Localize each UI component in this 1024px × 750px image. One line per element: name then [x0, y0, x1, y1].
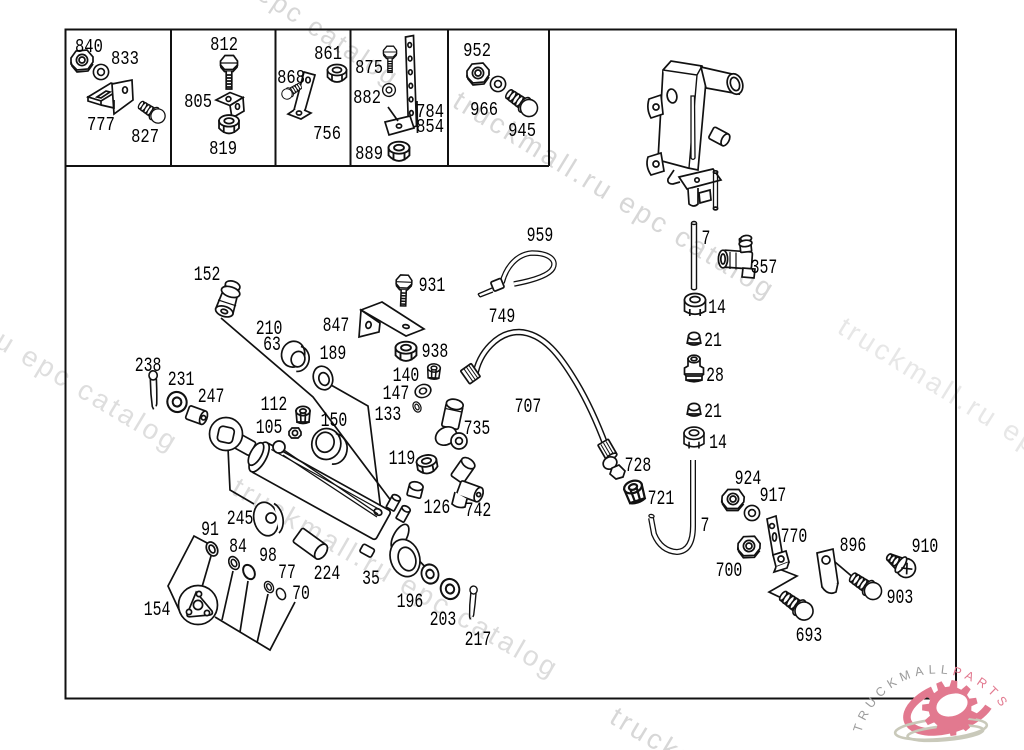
svg-text:35: 35: [362, 568, 380, 591]
svg-text:21: 21: [704, 330, 722, 353]
svg-text:742: 742: [465, 500, 492, 523]
svg-text:224: 224: [314, 563, 341, 586]
svg-text:28: 28: [706, 365, 724, 388]
svg-text:931: 931: [419, 275, 446, 298]
svg-text:735: 735: [464, 418, 491, 441]
svg-text:245: 245: [227, 508, 254, 531]
svg-text:133: 133: [375, 404, 402, 427]
svg-text:98: 98: [259, 545, 277, 568]
svg-text:91: 91: [201, 519, 219, 542]
svg-text:700: 700: [716, 560, 743, 583]
svg-text:203: 203: [430, 609, 457, 632]
svg-text:903: 903: [887, 587, 914, 610]
svg-text:952: 952: [463, 40, 491, 62]
svg-text:21: 21: [704, 401, 722, 424]
svg-text:827: 827: [131, 126, 159, 148]
svg-text:917: 917: [760, 485, 787, 508]
svg-text:959: 959: [527, 225, 554, 248]
svg-text:924: 924: [735, 468, 762, 491]
svg-text:861: 861: [314, 43, 342, 65]
svg-text:910: 910: [912, 536, 939, 559]
svg-text:882: 882: [353, 87, 381, 109]
svg-text:112: 112: [261, 394, 288, 417]
svg-text:105: 105: [256, 417, 283, 440]
svg-text:812: 812: [210, 34, 238, 56]
svg-text:721: 721: [648, 488, 675, 511]
svg-text:14: 14: [708, 297, 726, 320]
svg-text:231: 231: [168, 369, 195, 392]
svg-text:152: 152: [194, 264, 221, 287]
svg-text:84: 84: [229, 536, 247, 559]
svg-text:247: 247: [198, 386, 225, 409]
svg-text:63: 63: [263, 334, 281, 357]
svg-text:966: 966: [470, 99, 498, 121]
svg-text:875: 875: [355, 57, 383, 79]
svg-text:196: 196: [397, 591, 424, 614]
svg-text:749: 749: [489, 306, 516, 329]
svg-text:147: 147: [383, 383, 410, 406]
svg-text:938: 938: [422, 341, 449, 364]
svg-text:840: 840: [75, 36, 103, 58]
svg-text:238: 238: [135, 355, 162, 378]
svg-text:7: 7: [701, 515, 710, 538]
svg-text:7: 7: [702, 228, 711, 251]
svg-text:805: 805: [184, 91, 212, 113]
svg-text:756: 756: [313, 123, 341, 145]
svg-text:868: 868: [277, 67, 305, 89]
svg-text:357: 357: [751, 257, 778, 280]
svg-text:854: 854: [416, 116, 444, 138]
svg-text:896: 896: [840, 535, 867, 558]
svg-text:119: 119: [389, 448, 416, 471]
svg-text:945: 945: [508, 120, 536, 142]
svg-text:150: 150: [321, 410, 348, 433]
svg-text:707: 707: [515, 396, 542, 419]
svg-text:14: 14: [709, 432, 727, 455]
svg-text:770: 770: [781, 526, 808, 549]
svg-text:833: 833: [111, 48, 139, 70]
svg-text:77: 77: [278, 562, 296, 585]
svg-text:217: 217: [465, 629, 492, 652]
svg-text:154: 154: [144, 599, 171, 622]
svg-text:189: 189: [320, 343, 347, 366]
svg-text:728: 728: [625, 455, 652, 478]
svg-text:819: 819: [209, 138, 237, 160]
svg-text:70: 70: [292, 583, 310, 606]
svg-text:126: 126: [424, 497, 451, 520]
svg-text:777: 777: [87, 114, 115, 136]
svg-text:847: 847: [323, 315, 350, 338]
svg-text:889: 889: [355, 143, 383, 165]
svg-text:693: 693: [796, 625, 823, 648]
